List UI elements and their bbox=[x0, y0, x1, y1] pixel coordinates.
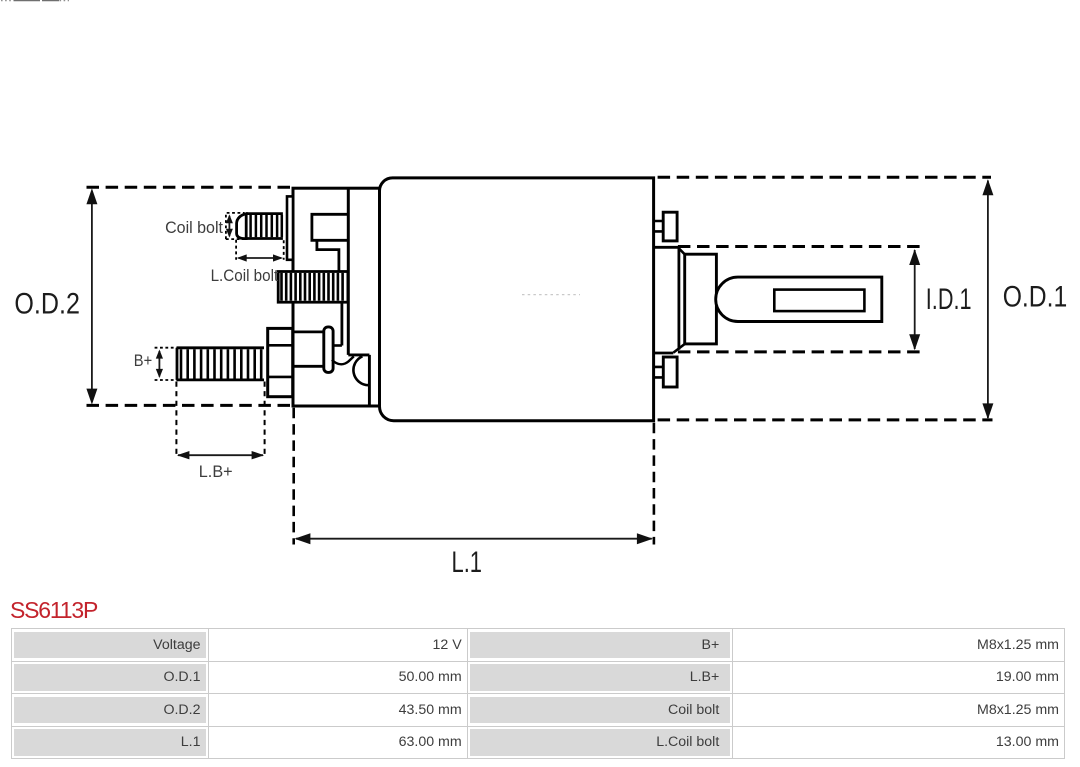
svg-text:L.B+: L.B+ bbox=[199, 463, 233, 481]
svg-text:I.D.1: I.D.1 bbox=[926, 283, 972, 316]
svg-text:L.Coil bolt: L.Coil bolt bbox=[211, 267, 279, 285]
svg-text:B+: B+ bbox=[134, 352, 152, 370]
svg-text:O.D.2: O.D.2 bbox=[14, 287, 80, 320]
svg-text:Coil bolt: Coil bolt bbox=[165, 219, 223, 237]
svg-text:O.D.1: O.D.1 bbox=[1003, 280, 1068, 313]
svg-text:L.1: L.1 bbox=[452, 546, 483, 579]
